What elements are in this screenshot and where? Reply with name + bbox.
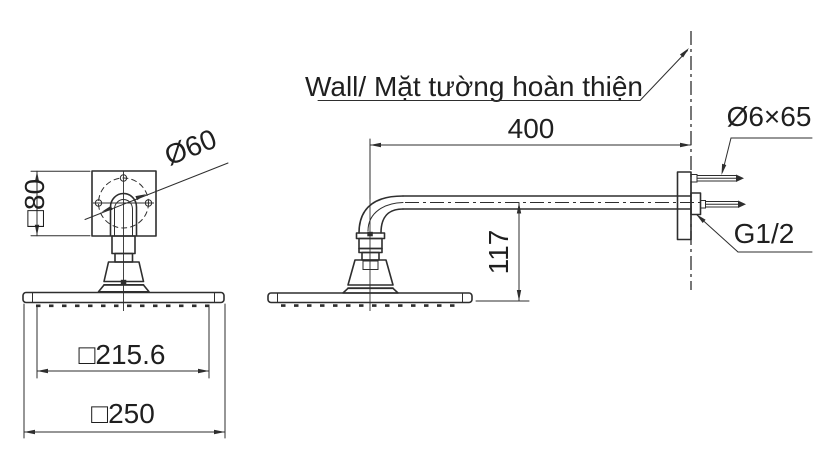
connector-dot [121, 280, 127, 285]
connector-stack-side [357, 232, 385, 260]
dim-spray-face: □215.6 [37, 307, 209, 378]
front-view: □80 Ø60 □215.6 □250 [19, 123, 228, 438]
shower-head-technical-drawing: □80 Ø60 □215.6 □250 [0, 0, 823, 454]
dim-arm-length-label: 400 [508, 113, 555, 144]
screw-upper [691, 175, 744, 183]
dim-spray-face-label: □215.6 [79, 339, 166, 370]
thread-spec-label: G1/2 [734, 218, 795, 249]
ball-joint-cone [343, 260, 398, 293]
wall-flange [678, 172, 692, 240]
wall-note: Wall/ Mặt tường hoàn thiện [305, 48, 689, 102]
shower-arm-pipe [359, 196, 702, 233]
wall-note-label: Wall/ Mặt tường hoàn thiện [305, 71, 643, 102]
thread-spec: G1/2 [696, 214, 812, 252]
pipe-fitting [691, 193, 701, 215]
dim-pitch-circle-label: Ø60 [160, 123, 221, 171]
dim-arm-length: 400 [370, 113, 691, 199]
side-view: 400 117 Wall/ Mặt tường hoàn thiện Ø6×65… [268, 31, 812, 311]
dim-head-width-label: □250 [91, 398, 155, 429]
dim-head-drop-label: 117 [483, 230, 514, 275]
screw-spec: Ø6×65 [722, 101, 813, 175]
dim-plate-size-label: □80 [19, 179, 50, 227]
dim-head-drop: 117 [476, 203, 529, 302]
arm-elbow-inner [381, 209, 403, 233]
dim-plate-size: □80 [19, 171, 90, 235]
technical-drawing-page: □80 Ø60 □215.6 □250 [0, 0, 823, 454]
screw-spec-label: Ø6×65 [727, 101, 812, 132]
screw-lower [701, 201, 747, 209]
